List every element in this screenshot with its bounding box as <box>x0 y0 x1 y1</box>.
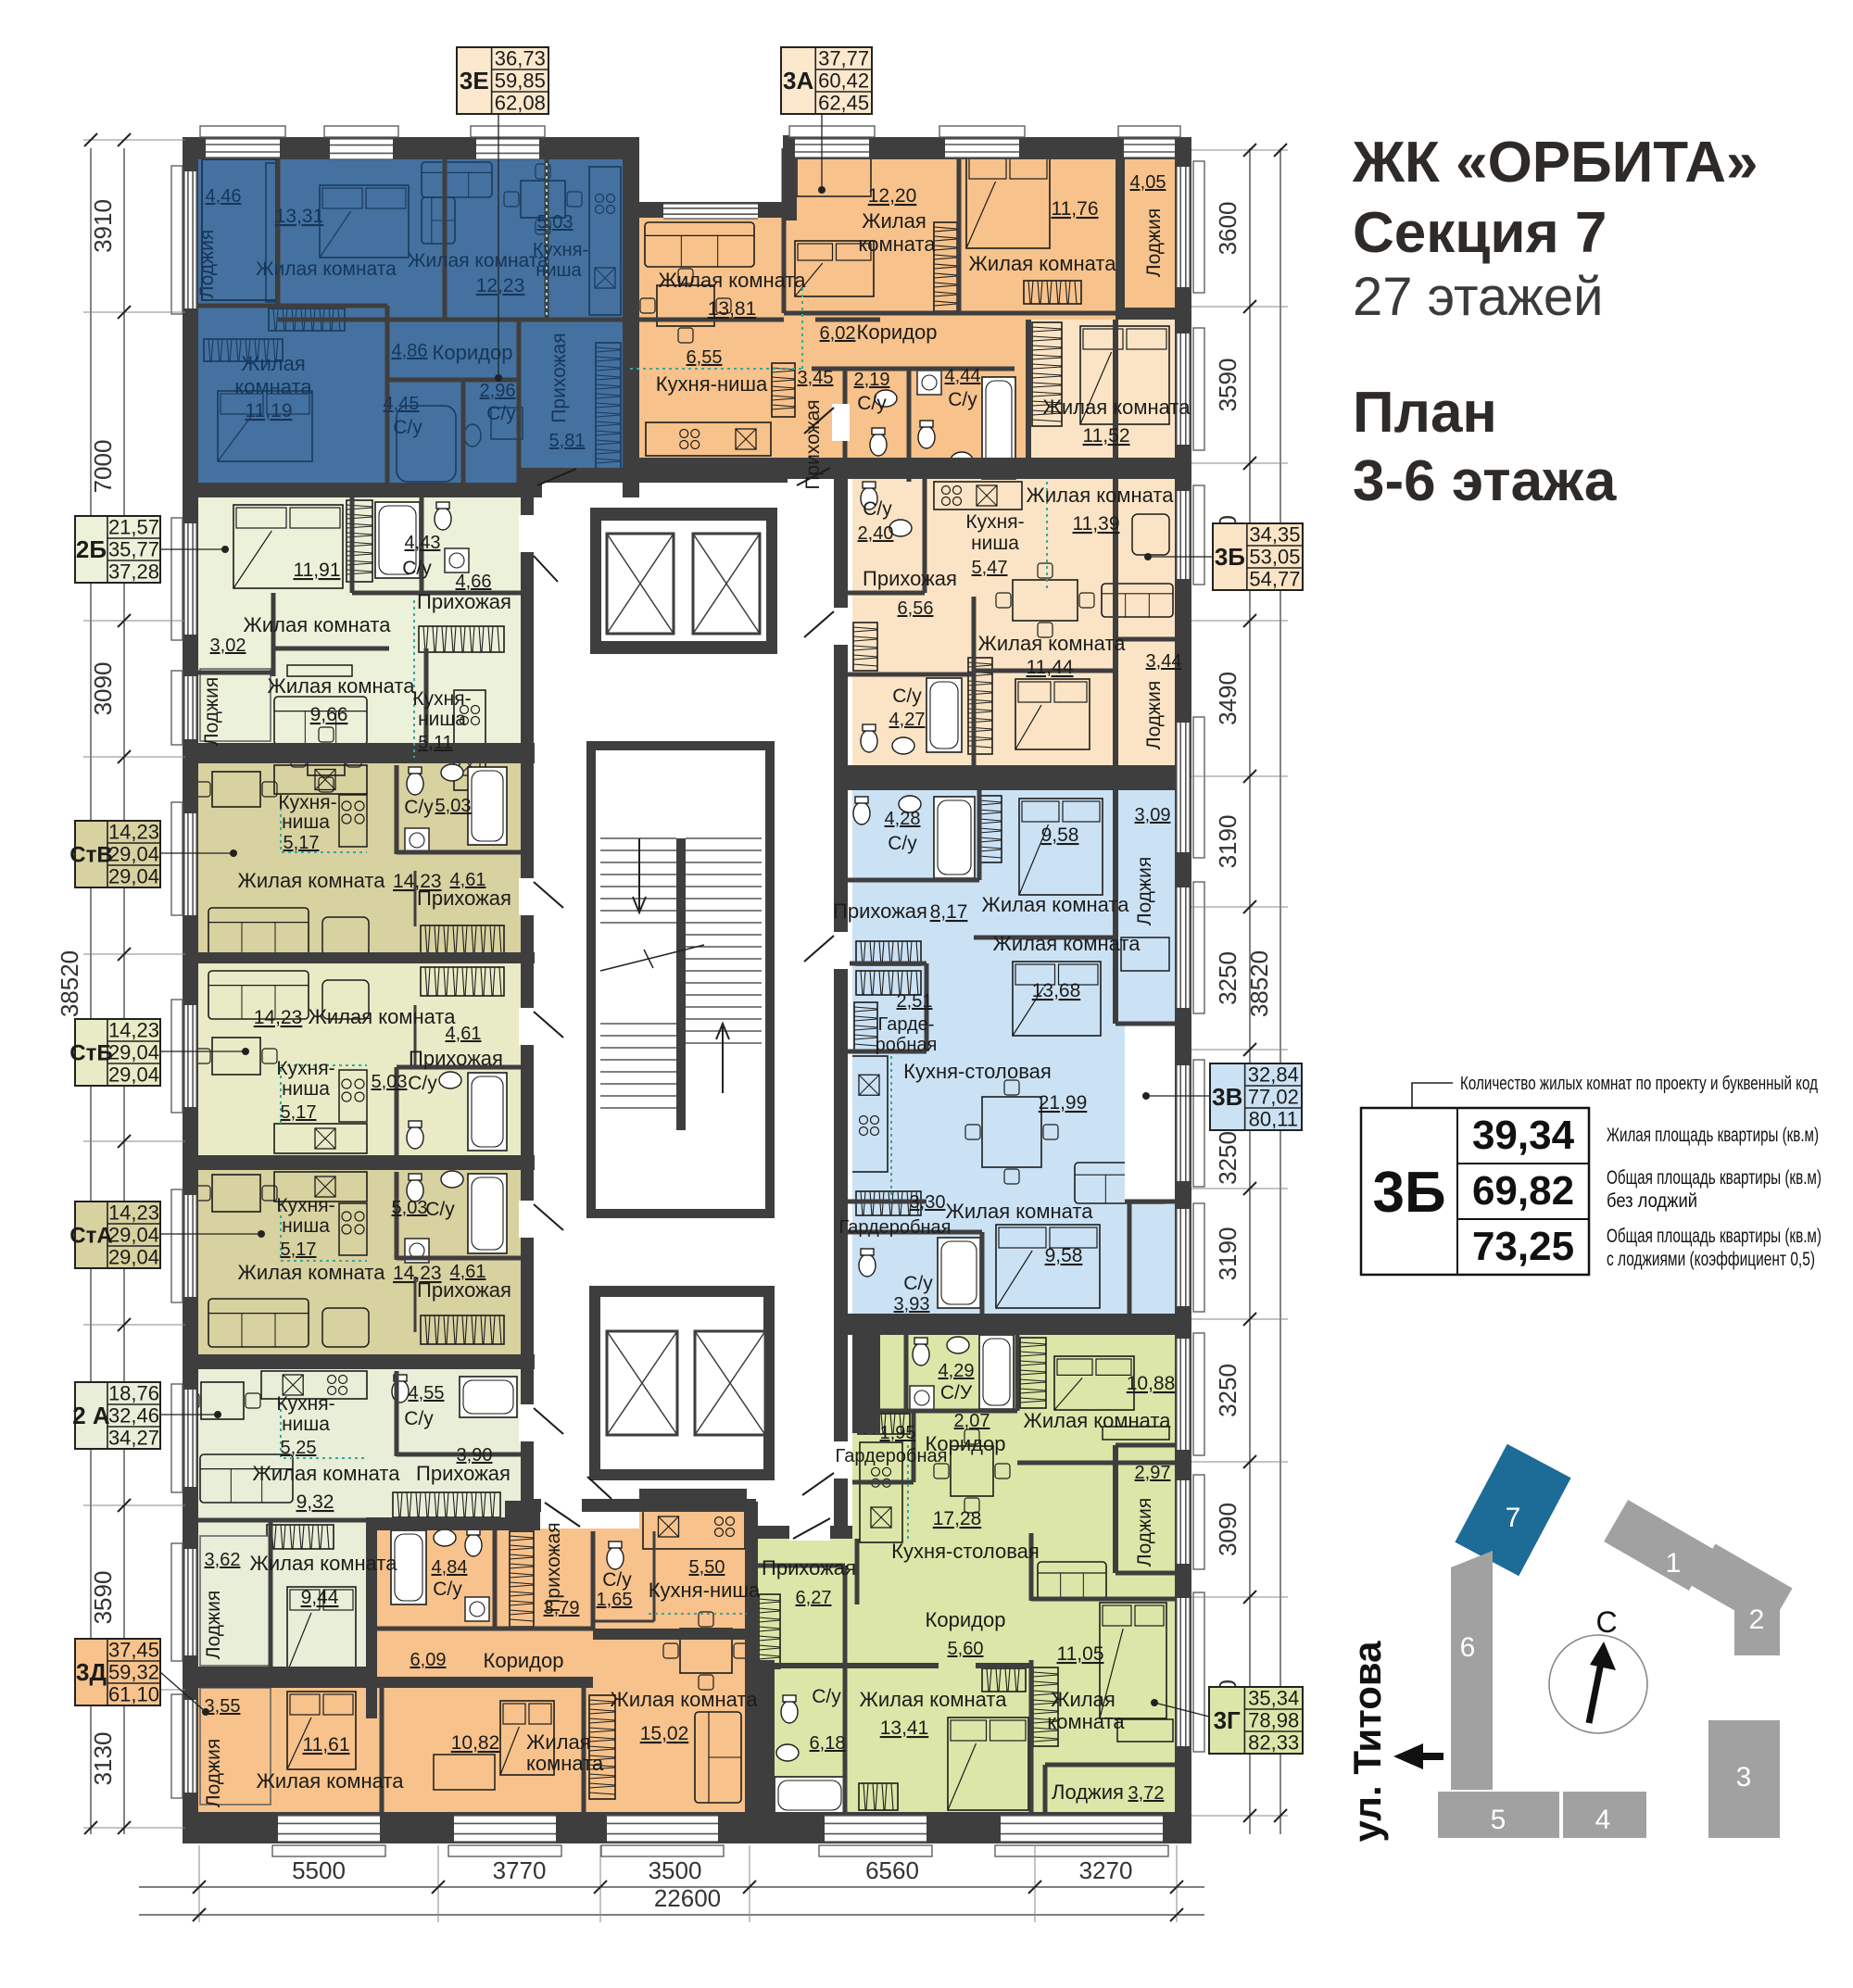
svg-text:29,04: 29,04 <box>108 1063 159 1087</box>
svg-text:5,81: 5,81 <box>549 431 586 451</box>
svg-text:11,91: 11,91 <box>294 560 341 581</box>
svg-text:3,09: 3,09 <box>1135 805 1171 825</box>
svg-text:Жилая комната: Жилая комната <box>993 932 1141 955</box>
svg-text:5,60: 5,60 <box>948 1639 984 1659</box>
svg-text:11,39: 11,39 <box>1073 513 1120 535</box>
svg-text:ниша: ниша <box>971 533 1019 554</box>
svg-text:Лоджия: Лоджия <box>203 1739 224 1807</box>
svg-text:4,55: 4,55 <box>409 1383 445 1403</box>
svg-text:53,05: 53,05 <box>1249 546 1300 569</box>
svg-text:С/у: С/у <box>812 1686 841 1707</box>
svg-text:2Б: 2Б <box>76 535 107 563</box>
svg-text:7: 7 <box>1506 1503 1521 1533</box>
svg-text:Лоджия: Лоджия <box>1134 857 1155 925</box>
svg-text:5,50: 5,50 <box>689 1557 725 1578</box>
svg-text:5,47: 5,47 <box>972 558 1008 578</box>
svg-text:3250: 3250 <box>1214 951 1242 1005</box>
svg-text:36,73: 36,73 <box>495 47 546 70</box>
svg-text:Кухня-ниша: Кухня-ниша <box>649 1579 761 1602</box>
svg-text:5,17: 5,17 <box>281 1102 317 1123</box>
svg-text:4,46: 4,46 <box>206 186 242 207</box>
svg-text:32,46: 32,46 <box>108 1404 159 1428</box>
svg-text:29,04: 29,04 <box>108 843 159 866</box>
svg-text:5: 5 <box>1491 1805 1506 1835</box>
svg-text:9,66: 9,66 <box>310 704 348 725</box>
svg-text:3,79: 3,79 <box>544 1598 580 1618</box>
svg-text:4,28: 4,28 <box>885 809 921 829</box>
svg-text:Жилая комната: Жилая комната <box>1027 484 1175 507</box>
svg-text:13,41: 13,41 <box>880 1717 929 1739</box>
svg-text:3Б: 3Б <box>1372 1161 1445 1225</box>
svg-text:6,18: 6,18 <box>810 1733 846 1754</box>
svg-text:6560: 6560 <box>865 1856 919 1884</box>
svg-text:14,23: 14,23 <box>108 821 159 844</box>
svg-text:Жилая комната: Жилая комната <box>256 258 397 280</box>
svg-text:3590: 3590 <box>89 1571 117 1625</box>
svg-text:4: 4 <box>1595 1805 1611 1835</box>
svg-text:Лоджия: Лоджия <box>1143 681 1165 749</box>
svg-text:3Б: 3Б <box>1215 543 1245 571</box>
svg-text:2,51: 2,51 <box>897 991 933 1012</box>
svg-text:4,05: 4,05 <box>1130 172 1166 193</box>
svg-text:Коридор: Коридор <box>926 1608 1006 1631</box>
svg-text:13,68: 13,68 <box>1032 980 1081 1001</box>
svg-text:Жилая комната: Жилая комната <box>253 1462 401 1485</box>
svg-text:3,72: 3,72 <box>1128 1783 1165 1804</box>
svg-text:1,65: 1,65 <box>597 1590 633 1610</box>
svg-text:С/у: С/у <box>433 1579 462 1600</box>
svg-text:Жилая комната: Жилая комната <box>611 1688 759 1711</box>
svg-text:Прихожая: Прихожая <box>417 590 511 613</box>
svg-text:54,77: 54,77 <box>1249 568 1300 591</box>
svg-text:2,07: 2,07 <box>954 1411 990 1431</box>
svg-text:Кухня-: Кухня- <box>965 511 1024 533</box>
svg-text:Прихожая: Прихожая <box>833 900 927 923</box>
svg-text:9,58: 9,58 <box>1045 1245 1083 1266</box>
svg-text:29,04: 29,04 <box>108 1224 159 1247</box>
svg-text:11,19: 11,19 <box>246 400 293 422</box>
svg-text:38520: 38520 <box>56 950 83 1017</box>
svg-text:3В: 3В <box>1212 1083 1242 1111</box>
svg-text:ниша: ниша <box>282 812 330 833</box>
svg-text:Жилая: Жилая <box>241 352 306 375</box>
svg-text:3,45: 3,45 <box>798 368 834 388</box>
svg-text:3,44: 3,44 <box>1146 651 1182 672</box>
svg-text:2,97: 2,97 <box>1135 1463 1171 1483</box>
svg-text:3600: 3600 <box>1214 202 1242 256</box>
svg-text:Жилая комната: Жилая комната <box>1043 396 1191 419</box>
svg-text:4,44: 4,44 <box>945 366 981 386</box>
svg-text:82,33: 82,33 <box>1248 1731 1299 1755</box>
svg-text:Лоджия: Лоджия <box>201 677 222 746</box>
svg-text:Кухня-: Кухня- <box>276 1393 334 1415</box>
svg-text:5,03: 5,03 <box>435 796 472 816</box>
svg-text:13,81: 13,81 <box>708 298 757 320</box>
svg-text:Кухня-столовая: Кухня-столовая <box>891 1540 1040 1563</box>
svg-text:5,25: 5,25 <box>281 1438 317 1458</box>
svg-text:без лоджий: без лоджий <box>1607 1190 1697 1212</box>
svg-text:ниша: ниша <box>536 260 582 281</box>
svg-text:5,03: 5,03 <box>537 212 574 233</box>
svg-text:6,27: 6,27 <box>796 1588 832 1608</box>
svg-text:Жилая комната: Жилая комната <box>978 632 1127 655</box>
svg-text:73,25: 73,25 <box>1472 1224 1574 1269</box>
svg-text:ниша: ниша <box>282 1414 330 1435</box>
svg-text:27 этажей: 27 этажей <box>1353 267 1604 327</box>
svg-text:3490: 3490 <box>1214 672 1242 725</box>
svg-text:Гардеробная: Гардеробная <box>836 1446 948 1466</box>
svg-text:С/у: С/у <box>408 1073 437 1094</box>
svg-text:3500: 3500 <box>649 1856 702 1884</box>
svg-text:Прихожая: Прихожая <box>762 1556 856 1579</box>
svg-text:3590: 3590 <box>1214 359 1242 412</box>
svg-text:5,17: 5,17 <box>284 833 320 853</box>
svg-text:Прихожая: Прихожая <box>417 1278 511 1302</box>
svg-text:Жилая: Жилая <box>862 209 926 233</box>
svg-text:ниша: ниша <box>282 1215 330 1237</box>
svg-text:Прихожая: Прихожая <box>802 399 824 489</box>
svg-text:5,11: 5,11 <box>418 733 452 753</box>
svg-text:62,08: 62,08 <box>495 92 546 115</box>
svg-text:3,62: 3,62 <box>205 1550 241 1570</box>
svg-text:4,45: 4,45 <box>384 394 420 414</box>
svg-text:10,82: 10,82 <box>451 1732 500 1754</box>
svg-text:ниша: ниша <box>282 1078 330 1100</box>
svg-text:34,27: 34,27 <box>108 1427 159 1450</box>
svg-text:С/у: С/у <box>393 417 422 438</box>
svg-text:С/у: С/у <box>892 686 922 707</box>
svg-text:11,05: 11,05 <box>1057 1643 1104 1665</box>
svg-text:3А: 3А <box>783 67 813 94</box>
svg-text:С/у: С/у <box>402 558 432 579</box>
svg-text:Количество жилых комнат по про: Количество жилых комнат по проекту и бук… <box>1460 1073 1818 1094</box>
svg-text:3770: 3770 <box>493 1856 547 1884</box>
svg-text:Жилая комната: Жилая комната <box>1024 1409 1172 1432</box>
svg-text:С: С <box>1595 1605 1617 1639</box>
svg-text:3: 3 <box>1736 1762 1752 1793</box>
svg-text:4,27: 4,27 <box>889 710 926 730</box>
svg-text:Жилая: Жилая <box>526 1730 591 1754</box>
svg-text:14,23: 14,23 <box>108 1202 159 1225</box>
svg-text:С/у: С/у <box>903 1273 933 1294</box>
svg-text:Прихожая: Прихожая <box>416 1462 511 1485</box>
svg-text:3,55: 3,55 <box>205 1696 241 1717</box>
svg-text:Секция 7: Секция 7 <box>1353 201 1607 265</box>
svg-text:5,03: 5,03 <box>392 1198 428 1218</box>
svg-text:С/у: С/у <box>486 403 516 424</box>
svg-text:4,86: 4,86 <box>392 341 428 361</box>
svg-text:Кухня-: Кухня- <box>533 240 588 260</box>
svg-text:11,52: 11,52 <box>1083 425 1130 447</box>
svg-text:3Д: 3Д <box>76 1658 107 1686</box>
svg-text:6,55: 6,55 <box>687 347 723 368</box>
svg-text:С/у: С/у <box>425 1199 455 1220</box>
svg-text:77,02: 77,02 <box>1248 1086 1299 1109</box>
svg-text:3910: 3910 <box>89 199 117 253</box>
svg-text:с лоджиями (коэффициент 0,5): с лоджиями (коэффициент 0,5) <box>1607 1249 1815 1270</box>
svg-text:4,66: 4,66 <box>456 572 492 592</box>
svg-text:35,34: 35,34 <box>1248 1687 1299 1710</box>
svg-text:11,44: 11,44 <box>1027 657 1074 678</box>
svg-text:1: 1 <box>1666 1548 1682 1579</box>
svg-text:Лоджия: Лоджия <box>1143 208 1165 277</box>
svg-text:5,17: 5,17 <box>281 1239 317 1260</box>
svg-text:6,02: 6,02 <box>820 323 856 344</box>
svg-text:1,95: 1,95 <box>880 1423 916 1443</box>
svg-text:Жилая комната: Жилая комната <box>238 869 386 892</box>
svg-text:Лоджия: Лоджия <box>1052 1780 1124 1804</box>
svg-text:2,19: 2,19 <box>854 370 890 390</box>
svg-text:15,02: 15,02 <box>640 1723 689 1744</box>
svg-text:13,31: 13,31 <box>275 206 324 227</box>
svg-text:80,11: 80,11 <box>1249 1108 1298 1131</box>
svg-text:Кухня-: Кухня- <box>412 688 471 710</box>
svg-text:3Г: 3Г <box>1214 1706 1241 1734</box>
svg-text:Жилая комната: Жилая комната <box>860 1688 1008 1711</box>
svg-text:21,57: 21,57 <box>108 516 159 539</box>
svg-text:Жилая комната: Жилая комната <box>238 1261 386 1284</box>
svg-text:3190: 3190 <box>1214 815 1242 869</box>
svg-text:59,85: 59,85 <box>495 69 546 93</box>
svg-text:Прихожая: Прихожая <box>417 887 511 910</box>
svg-text:2: 2 <box>1749 1604 1765 1635</box>
svg-text:4,29: 4,29 <box>939 1361 975 1381</box>
svg-text:35,77: 35,77 <box>108 538 159 561</box>
svg-text:3090: 3090 <box>1214 1503 1242 1556</box>
svg-text:4,84: 4,84 <box>432 1557 468 1578</box>
svg-text:комната: комната <box>234 375 312 398</box>
svg-text:4,61: 4,61 <box>446 1024 482 1044</box>
svg-text:14,23: 14,23 <box>254 1007 303 1028</box>
svg-text:Кухня-ниша: Кухня-ниша <box>656 372 768 396</box>
svg-text:робная: робная <box>876 1035 938 1055</box>
svg-text:Жилая комната: Жилая комната <box>250 1552 398 1575</box>
svg-text:78,98: 78,98 <box>1248 1709 1299 1732</box>
svg-text:С/у: С/у <box>602 1569 632 1591</box>
svg-text:Гардеробная: Гардеробная <box>839 1217 952 1238</box>
svg-text:С/У: С/У <box>940 1382 973 1403</box>
svg-text:3250: 3250 <box>1214 1364 1242 1417</box>
svg-text:План: План <box>1353 381 1497 445</box>
svg-text:С/у: С/у <box>404 1408 434 1429</box>
svg-text:37,77: 37,77 <box>818 47 869 70</box>
svg-text:С/у: С/у <box>863 498 892 520</box>
svg-text:3,30: 3,30 <box>910 1192 946 1213</box>
svg-text:39,34: 39,34 <box>1472 1113 1575 1158</box>
svg-text:Прихожая: Прихожая <box>409 1047 503 1070</box>
svg-text:5500: 5500 <box>292 1856 346 1884</box>
svg-text:29,04: 29,04 <box>108 1246 159 1269</box>
svg-text:17,28: 17,28 <box>933 1508 982 1529</box>
svg-text:12,20: 12,20 <box>868 185 917 207</box>
svg-text:3Е: 3Е <box>460 67 489 94</box>
svg-text:Лоджия: Лоджия <box>1134 1498 1155 1566</box>
svg-text:Кухня-: Кухня- <box>276 1195 334 1216</box>
svg-text:62,45: 62,45 <box>818 92 869 115</box>
svg-text:59,32: 59,32 <box>108 1661 159 1684</box>
svg-text:Жилая комната: Жилая комната <box>244 613 392 636</box>
svg-text:С/у: С/у <box>404 797 434 818</box>
svg-text:Жилая: Жилая <box>1051 1688 1116 1711</box>
svg-text:комната: комната <box>1047 1710 1125 1733</box>
svg-text:комната: комната <box>526 1752 604 1775</box>
svg-text:ул. Титова: ул. Титова <box>1345 1641 1389 1843</box>
svg-text:Общая площадь квартиры (кв.м): Общая площадь квартиры (кв.м) <box>1607 1167 1821 1189</box>
svg-text:Кухня-: Кухня- <box>278 792 336 813</box>
svg-text:ниша: ниша <box>418 709 466 730</box>
svg-text:Прихожая: Прихожая <box>863 567 957 590</box>
svg-text:ЖК «ОРБИТА»: ЖК «ОРБИТА» <box>1352 131 1758 195</box>
svg-text:комната: комната <box>858 233 936 256</box>
svg-text:9,58: 9,58 <box>1041 824 1079 846</box>
svg-text:6: 6 <box>1460 1632 1476 1663</box>
svg-text:2,96: 2,96 <box>480 381 516 401</box>
svg-text:Прихожая: Прихожая <box>548 333 570 422</box>
svg-text:69,82: 69,82 <box>1472 1168 1574 1214</box>
svg-text:Кухня-: Кухня- <box>276 1058 334 1079</box>
svg-text:61,10: 61,10 <box>108 1683 159 1706</box>
svg-text:38520: 38520 <box>1245 950 1273 1017</box>
svg-text:60,42: 60,42 <box>818 69 869 93</box>
svg-text:Коридор: Коридор <box>433 341 513 364</box>
svg-text:22600: 22600 <box>654 1884 721 1912</box>
svg-text:10,88: 10,88 <box>1127 1373 1176 1394</box>
svg-text:3130: 3130 <box>89 1732 117 1786</box>
svg-text:21,99: 21,99 <box>1039 1092 1088 1114</box>
svg-text:Жилая комната: Жилая комната <box>946 1200 1094 1223</box>
svg-text:Жилая комната: Жилая комната <box>659 269 807 292</box>
svg-text:7000: 7000 <box>89 440 117 494</box>
svg-text:8,17: 8,17 <box>930 901 968 923</box>
svg-text:3090: 3090 <box>89 662 117 716</box>
svg-text:2,40: 2,40 <box>858 523 894 544</box>
svg-text:СтВ: СтВ <box>69 842 112 867</box>
svg-text:37,28: 37,28 <box>108 560 159 584</box>
svg-text:3270: 3270 <box>1079 1856 1133 1884</box>
svg-text:2 А: 2 А <box>72 1402 110 1429</box>
svg-text:9,44: 9,44 <box>301 1587 339 1608</box>
svg-text:Общая площадь квартиры (кв.м): Общая площадь квартиры (кв.м) <box>1607 1226 1821 1247</box>
svg-text:29,04: 29,04 <box>108 865 159 888</box>
svg-text:Кухня-столовая: Кухня-столовая <box>903 1060 1052 1083</box>
svg-text:34,35: 34,35 <box>1249 523 1300 547</box>
svg-text:С/у: С/у <box>888 833 917 854</box>
svg-text:12,23: 12,23 <box>476 275 525 296</box>
svg-text:Гарде-: Гарде- <box>878 1014 935 1035</box>
svg-text:С/у: С/у <box>857 393 887 414</box>
svg-text:Коридор: Коридор <box>857 321 938 344</box>
svg-text:11,61: 11,61 <box>303 1734 350 1755</box>
svg-text:3250: 3250 <box>1214 1131 1242 1185</box>
svg-text:6,56: 6,56 <box>898 598 934 619</box>
svg-text:37,45: 37,45 <box>108 1639 159 1662</box>
svg-text:СтБ: СтБ <box>69 1040 112 1065</box>
svg-text:Жилая комната: Жилая комната <box>408 250 548 271</box>
svg-text:29,04: 29,04 <box>108 1041 159 1064</box>
svg-text:32,84: 32,84 <box>1248 1063 1299 1087</box>
svg-text:Жилая комната: Жилая комната <box>982 893 1130 916</box>
svg-text:Жилая комната: Жилая комната <box>309 1005 457 1028</box>
svg-text:Лоджия: Лоджия <box>203 1591 224 1659</box>
svg-text:18,76: 18,76 <box>108 1382 159 1405</box>
svg-text:Жилая комната: Жилая комната <box>257 1769 405 1793</box>
svg-text:СтА: СтА <box>69 1223 112 1248</box>
svg-text:3-6 этажа: 3-6 этажа <box>1353 449 1617 513</box>
svg-text:Лоджия: Лоджия <box>196 230 218 298</box>
svg-text:9,32: 9,32 <box>296 1491 334 1513</box>
svg-text:Коридор: Коридор <box>484 1649 564 1672</box>
svg-text:5,03: 5,03 <box>372 1072 408 1092</box>
svg-text:Жилая комната: Жилая комната <box>969 252 1117 275</box>
svg-text:14,23: 14,23 <box>108 1019 159 1042</box>
svg-text:4,43: 4,43 <box>405 533 441 553</box>
svg-text:Жилая площадь квартиры (кв.м): Жилая площадь квартиры (кв.м) <box>1607 1125 1819 1146</box>
svg-text:3,93: 3,93 <box>894 1294 930 1315</box>
svg-text:С/у: С/у <box>948 389 977 410</box>
svg-text:3,02: 3,02 <box>210 635 246 656</box>
svg-text:6,09: 6,09 <box>410 1650 447 1670</box>
svg-text:11,76: 11,76 <box>1052 198 1099 220</box>
svg-text:3190: 3190 <box>1214 1227 1242 1281</box>
svg-text:Жилая комната: Жилая комната <box>268 674 416 698</box>
